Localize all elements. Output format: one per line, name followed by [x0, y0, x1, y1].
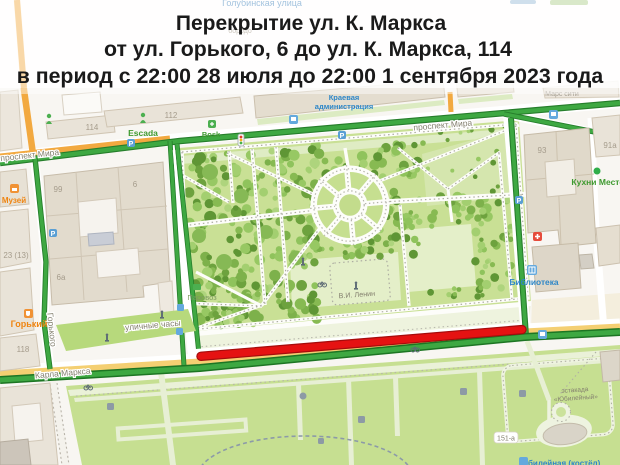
svg-text:Горький: Горький — [11, 319, 48, 329]
svg-text:6а: 6а — [57, 273, 66, 282]
svg-text:Музей: Музей — [2, 196, 26, 205]
svg-text:P: P — [517, 198, 522, 205]
svg-text:Юбилейная (костёл): Юбилейная (костёл) — [520, 459, 601, 465]
svg-text:P: P — [340, 133, 345, 140]
svg-text:Кухни Место: Кухни Место — [571, 177, 620, 187]
svg-text:23 (13): 23 (13) — [3, 251, 29, 260]
svg-text:P: P — [51, 231, 56, 238]
svg-text:Перекрытие ул. К. Маркса: Перекрытие ул. К. Маркса — [176, 12, 447, 35]
svg-text:администрация: администрация — [315, 102, 373, 111]
svg-text:114: 114 — [86, 123, 99, 132]
svg-text:99: 99 — [54, 185, 63, 194]
svg-text:Краевая: Краевая — [329, 93, 360, 102]
svg-text:Голубинская улица: Голубинская улица — [222, 0, 302, 8]
svg-text:Bosk: Bosk — [202, 130, 221, 139]
svg-text:112: 112 — [165, 111, 178, 120]
svg-text:118: 118 — [17, 345, 30, 354]
svg-text:93: 93 — [538, 146, 547, 155]
svg-text:Библиотека: Библиотека — [509, 277, 558, 287]
svg-text:91а: 91а — [603, 141, 617, 150]
svg-text:P: P — [129, 141, 134, 148]
svg-text:в период с 22:00 28 июля до 22: в период с 22:00 28 июля до 22:00 1 сент… — [17, 64, 604, 88]
svg-text:6: 6 — [133, 180, 138, 189]
svg-text:от ул. Горького, 6 до ул. К. М: от ул. Горького, 6 до ул. К. Маркса, 114 — [104, 37, 512, 61]
svg-text:Escada: Escada — [128, 128, 158, 138]
svg-text:151-а: 151-а — [497, 436, 515, 443]
svg-text:Паровоз: Паровоз — [187, 293, 217, 302]
